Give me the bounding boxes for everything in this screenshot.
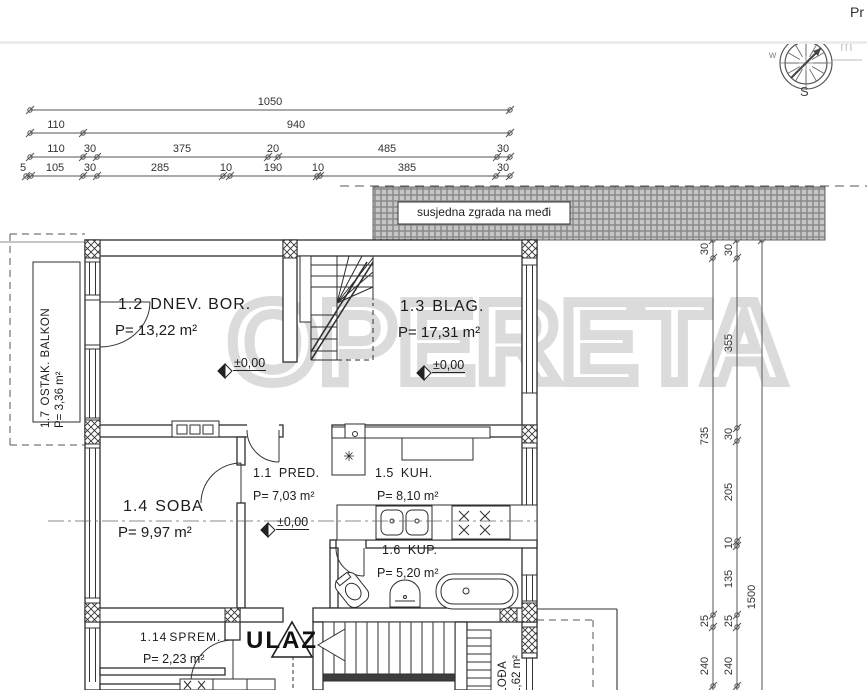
dim-label: 30 (723, 244, 735, 256)
room-name: KUH. (401, 466, 433, 480)
room-label-hall: 1.1PRED. (253, 466, 320, 480)
room-name: OSTAK. BALKON (40, 308, 52, 406)
room-code: 1.4 (123, 498, 148, 515)
dim-label: 735 (699, 427, 711, 445)
loggia-window (467, 630, 491, 690)
right-dimension-lines (709, 236, 766, 690)
header-partial-link[interactable]: Pr (850, 4, 864, 20)
room-area-dining: P= 17,31 m² (398, 324, 480, 341)
room-code: 1.1 (253, 466, 272, 480)
room-label-balcony: 1.7OSTAK. BALKON P= 3,36 m² (40, 308, 66, 428)
dim-label: 110 (47, 143, 65, 155)
room-label-kitchen: 1.5KUH. (375, 466, 433, 480)
room-area-kitchen: P= 8,10 m² (377, 489, 439, 503)
drawing-canvas: OPERETA (0, 0, 867, 690)
room-label-dining: 1.3BLAG. (400, 298, 484, 316)
compass-south-label: S (800, 84, 809, 99)
dim-label: 10 (220, 162, 232, 174)
bottom-partial-room (180, 679, 275, 690)
room-label-bath: 1.6KUP. (382, 543, 437, 557)
dim-label: 30 (84, 162, 96, 174)
room-label-room: 1.4SOBA (123, 498, 204, 516)
radiator (172, 421, 219, 437)
room-name: PRED. (279, 466, 320, 480)
room-name: DNEV. BOR. (150, 296, 251, 313)
dim-label: 25 (723, 615, 735, 627)
dim-label: 285 (151, 162, 169, 174)
room-name: LOĐA (497, 655, 509, 690)
room-code: 1.3 (400, 298, 425, 315)
dim-label: 30 (723, 428, 735, 440)
floorplan-drawing (0, 0, 867, 690)
neighbor-building-label: susjedna zgrada na međi (399, 205, 569, 219)
dim-label: 135 (723, 570, 735, 588)
room-area-living: P= 13,22 m² (115, 322, 197, 339)
dim-label: 205 (723, 483, 735, 501)
dim-label: 105 (46, 162, 64, 174)
porch-outline (537, 609, 617, 690)
level-marker-living: ±0,00 (233, 356, 266, 371)
dim-label: 110 (47, 119, 65, 131)
header-divider (0, 41, 867, 44)
room-area-hall: P= 7,03 m² (253, 489, 315, 503)
page-header: Pr (0, 0, 867, 41)
entrance-label: ULAZ (246, 627, 318, 655)
dim-label: 375 (173, 143, 191, 155)
room-name: BLAG. (432, 298, 484, 315)
room-area-loggia: 1,62 m² (511, 655, 523, 690)
level-marker-hall: ±0,00 (276, 515, 309, 530)
room-name: SPREM. (169, 630, 221, 644)
dim-label: 240 (723, 657, 735, 675)
dim-label: 485 (378, 143, 396, 155)
room-label-loggia: LOĐA 1,62 m² (497, 655, 523, 690)
room-label-living: 1.2DNEV. BOR. (118, 296, 251, 314)
interior-stairs (300, 256, 373, 360)
dim-label: 190 (264, 162, 282, 174)
compass-west-label: w (769, 50, 776, 61)
room-name: SOBA (155, 498, 203, 515)
room-area-room: P= 9,97 m² (118, 524, 192, 541)
dim-label: 20 (267, 143, 279, 155)
room-label-storage: 1.14SPREM. (140, 630, 221, 644)
dim-label: 10 (312, 162, 324, 174)
room-code: 1.5 (375, 466, 394, 480)
room-area-balcony: P= 3,36 m² (54, 308, 66, 428)
dim-label: 240 (699, 657, 711, 675)
dim-label: 25 (699, 615, 711, 627)
room-name: KUP. (408, 543, 438, 557)
dim-label: 30 (84, 143, 96, 155)
dim-label: 940 (287, 119, 305, 131)
dim-label: 1050 (258, 96, 282, 108)
dim-label: 385 (398, 162, 416, 174)
dim-label: 30 (699, 243, 711, 255)
level-marker-dining: ±0,00 (432, 358, 465, 373)
dim-label: 5 (20, 162, 26, 174)
kitchen-units (332, 424, 537, 540)
room-area-bath: P= 5,20 m² (377, 566, 439, 580)
dim-label: 355 (723, 334, 735, 352)
floor-plan-page: OPERETA (0, 0, 867, 690)
room-code: 1.6 (382, 543, 401, 557)
room-code: 1.7 (40, 411, 52, 429)
room-code: 1.2 (118, 296, 143, 313)
room-code: 1.14 (140, 630, 167, 644)
dim-label: 30 (497, 162, 509, 174)
dim-label: 30 (497, 143, 509, 155)
dim-label: 1500 (746, 585, 758, 609)
dim-label: 10 (723, 537, 735, 549)
room-area-storage: P= 2,23 m² (143, 652, 205, 666)
